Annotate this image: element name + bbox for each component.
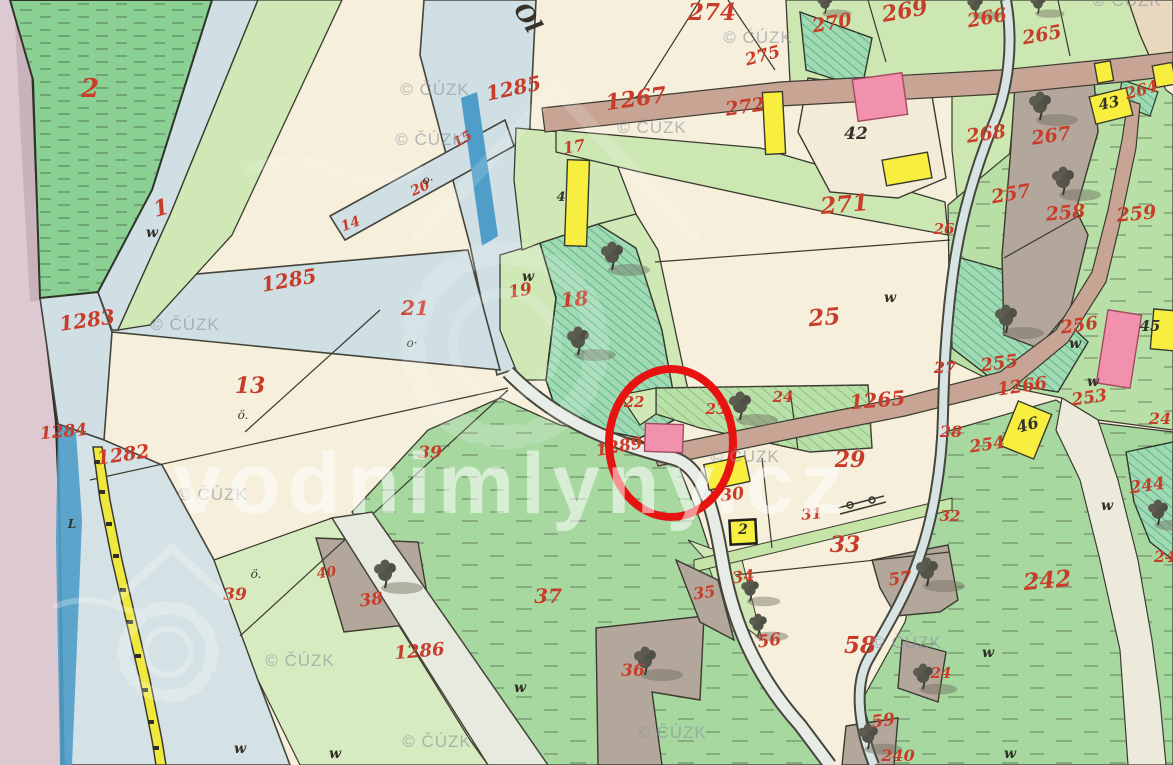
parcel-label: 57 — [887, 567, 913, 590]
site-watermark: vodnimlyny.cz — [173, 436, 850, 532]
parcel-label: 25 — [806, 303, 841, 333]
house-number-label: L — [67, 517, 76, 531]
meadow-mark: w — [1069, 336, 1082, 352]
meadow-mark: w — [234, 741, 247, 757]
parcel-label: 24 — [1153, 547, 1173, 566]
parcel-label: 32 — [940, 507, 961, 525]
parcel-label: 258 — [1044, 200, 1086, 225]
parcel-label: 17 — [561, 135, 586, 158]
building-yellow — [565, 160, 590, 247]
parcel-label: 33 — [830, 532, 861, 558]
parcel-label: 1284 — [39, 420, 88, 444]
parcel-label: 242 — [1021, 565, 1072, 596]
building-yellow — [1094, 61, 1113, 83]
meadow-mark: w — [146, 225, 159, 241]
parcel-label: 59 — [870, 709, 896, 732]
parcel-label: 24 — [772, 388, 794, 406]
parcel-label: 28 — [939, 422, 962, 441]
parcel-label: 27 — [933, 358, 956, 377]
building-pink — [852, 73, 907, 122]
cuzk-watermark: © ČÚZK — [637, 723, 707, 742]
parcel-label: 1265 — [849, 386, 907, 415]
parcel-label: 40 — [316, 564, 338, 583]
map-canvas[interactable]: 2112831284128212851285132139391420151267… — [0, 0, 1173, 765]
cuzk-watermark: © ČÚZK — [872, 633, 942, 652]
parcel-label: 259 — [1115, 201, 1157, 226]
parcel-label: 26 — [933, 220, 955, 238]
house-number-label: 45 — [1140, 317, 1161, 335]
parcel-label: 271 — [818, 189, 869, 220]
parcel-label: 240 — [880, 746, 914, 765]
parcel-label: 274 — [687, 0, 736, 26]
meadow-mark: w — [982, 645, 995, 661]
cuzk-watermark: © ČÚZK — [723, 28, 793, 47]
parcel-label: 38 — [358, 588, 384, 611]
house-number-label: 42 — [844, 124, 868, 144]
house-number-label: 4 — [556, 190, 565, 205]
meadow-mark: w — [329, 746, 342, 762]
meadow-mark: w — [884, 290, 897, 306]
cuzk-watermark: © ČÚZK — [265, 651, 335, 670]
cuzk-watermark: © ČÚZK — [150, 315, 220, 334]
cuzk-watermark: © ČÚZK — [395, 130, 465, 149]
parcel-label: 13 — [235, 373, 266, 399]
parcel-label: 37 — [534, 584, 562, 608]
meadow-mark: w — [514, 680, 527, 696]
parcel-label: 1286 — [394, 639, 446, 664]
parcel-label: 36 — [621, 661, 645, 681]
meadow-mark: w — [1004, 746, 1017, 762]
cuzk-watermark: © ČÚZK — [1092, 0, 1162, 10]
meadow-mark: w — [522, 269, 535, 285]
parcel-label: 24 — [1148, 409, 1171, 428]
parcel-label: 58 — [844, 632, 876, 659]
parcel-label: 34 — [731, 566, 756, 588]
parcel-label: 56 — [756, 629, 782, 652]
building-yellow — [762, 92, 785, 155]
meadow-mark: w — [1087, 374, 1100, 390]
cuzk-watermark: © ČÚZK — [402, 732, 472, 751]
parcel-label: 2 — [80, 74, 99, 104]
dot-mark: ö. — [251, 567, 262, 581]
meadow-mark: w — [1101, 498, 1114, 514]
dot-mark: ö. — [238, 408, 249, 422]
parcel-label: 35 — [692, 582, 717, 604]
cuzk-watermark: © ČÚZK — [400, 80, 470, 99]
parcel-label: 24 — [930, 664, 952, 682]
cuzk-watermark: © ČÚZK — [617, 118, 687, 137]
dot-mark: o· — [422, 173, 433, 187]
